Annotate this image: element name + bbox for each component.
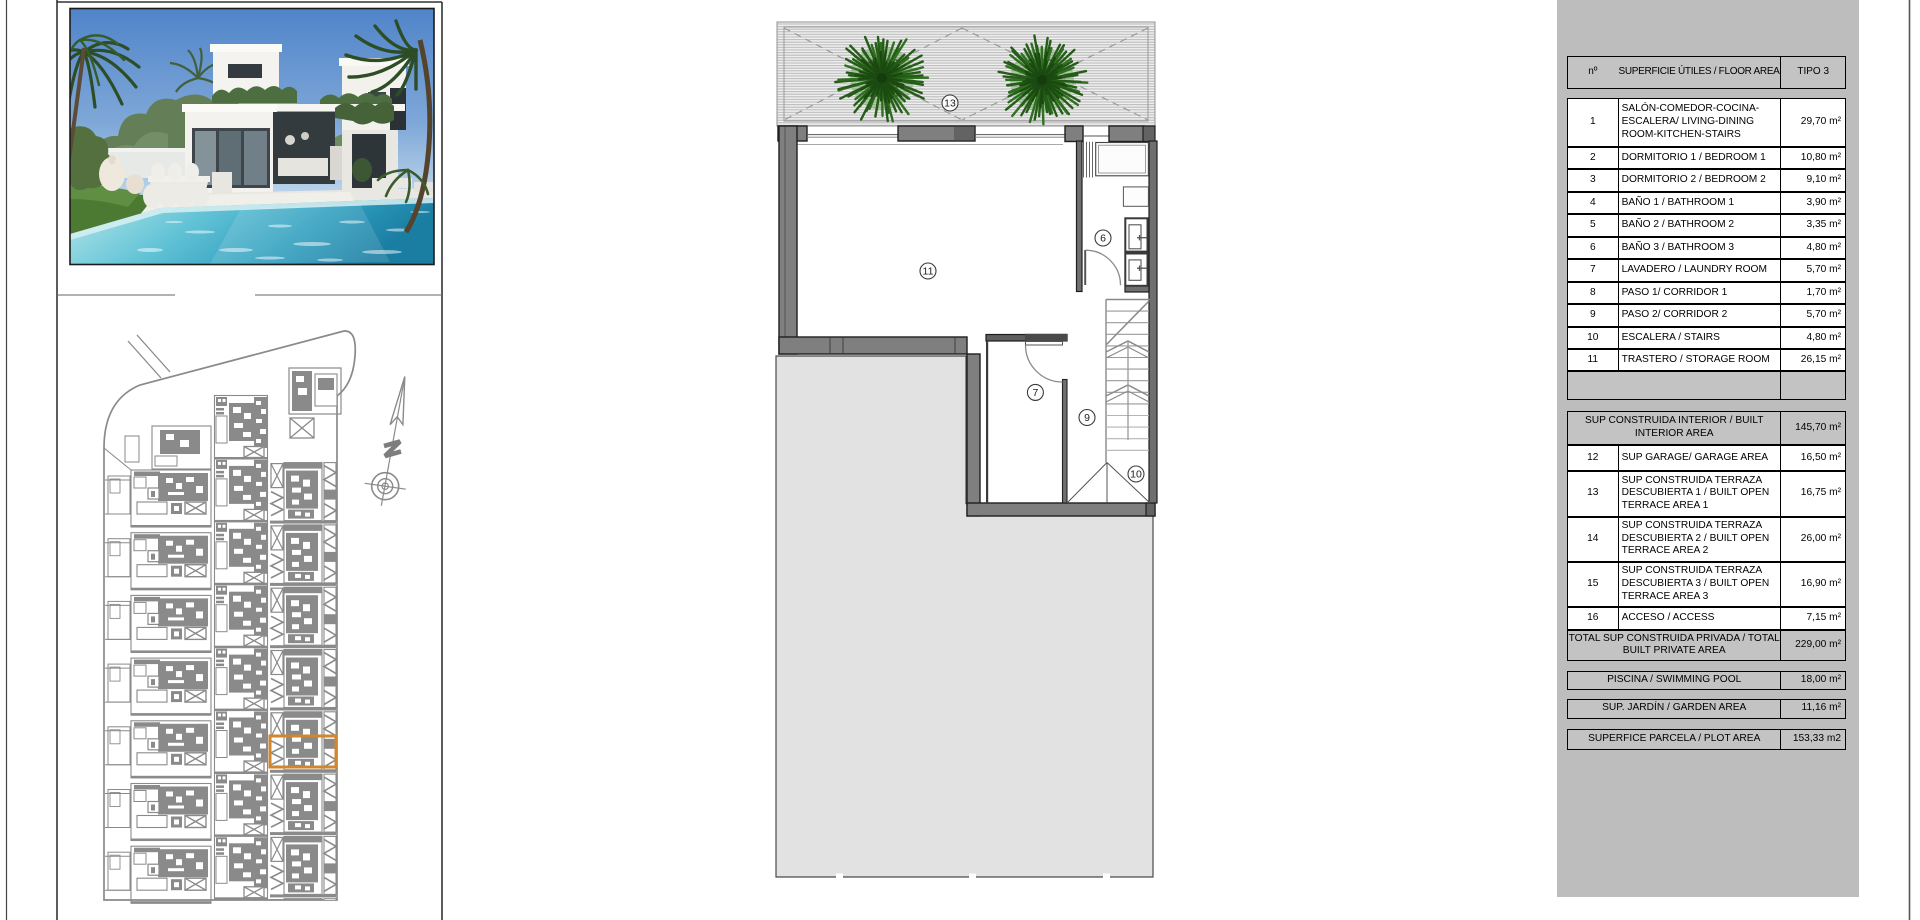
svg-text:6: 6 <box>1100 233 1106 245</box>
svg-text:10: 10 <box>1130 469 1142 481</box>
svg-text:9: 9 <box>1084 412 1090 424</box>
svg-text:13: 13 <box>944 98 956 110</box>
svg-text:7: 7 <box>1032 387 1038 399</box>
svg-text:11: 11 <box>923 266 934 278</box>
